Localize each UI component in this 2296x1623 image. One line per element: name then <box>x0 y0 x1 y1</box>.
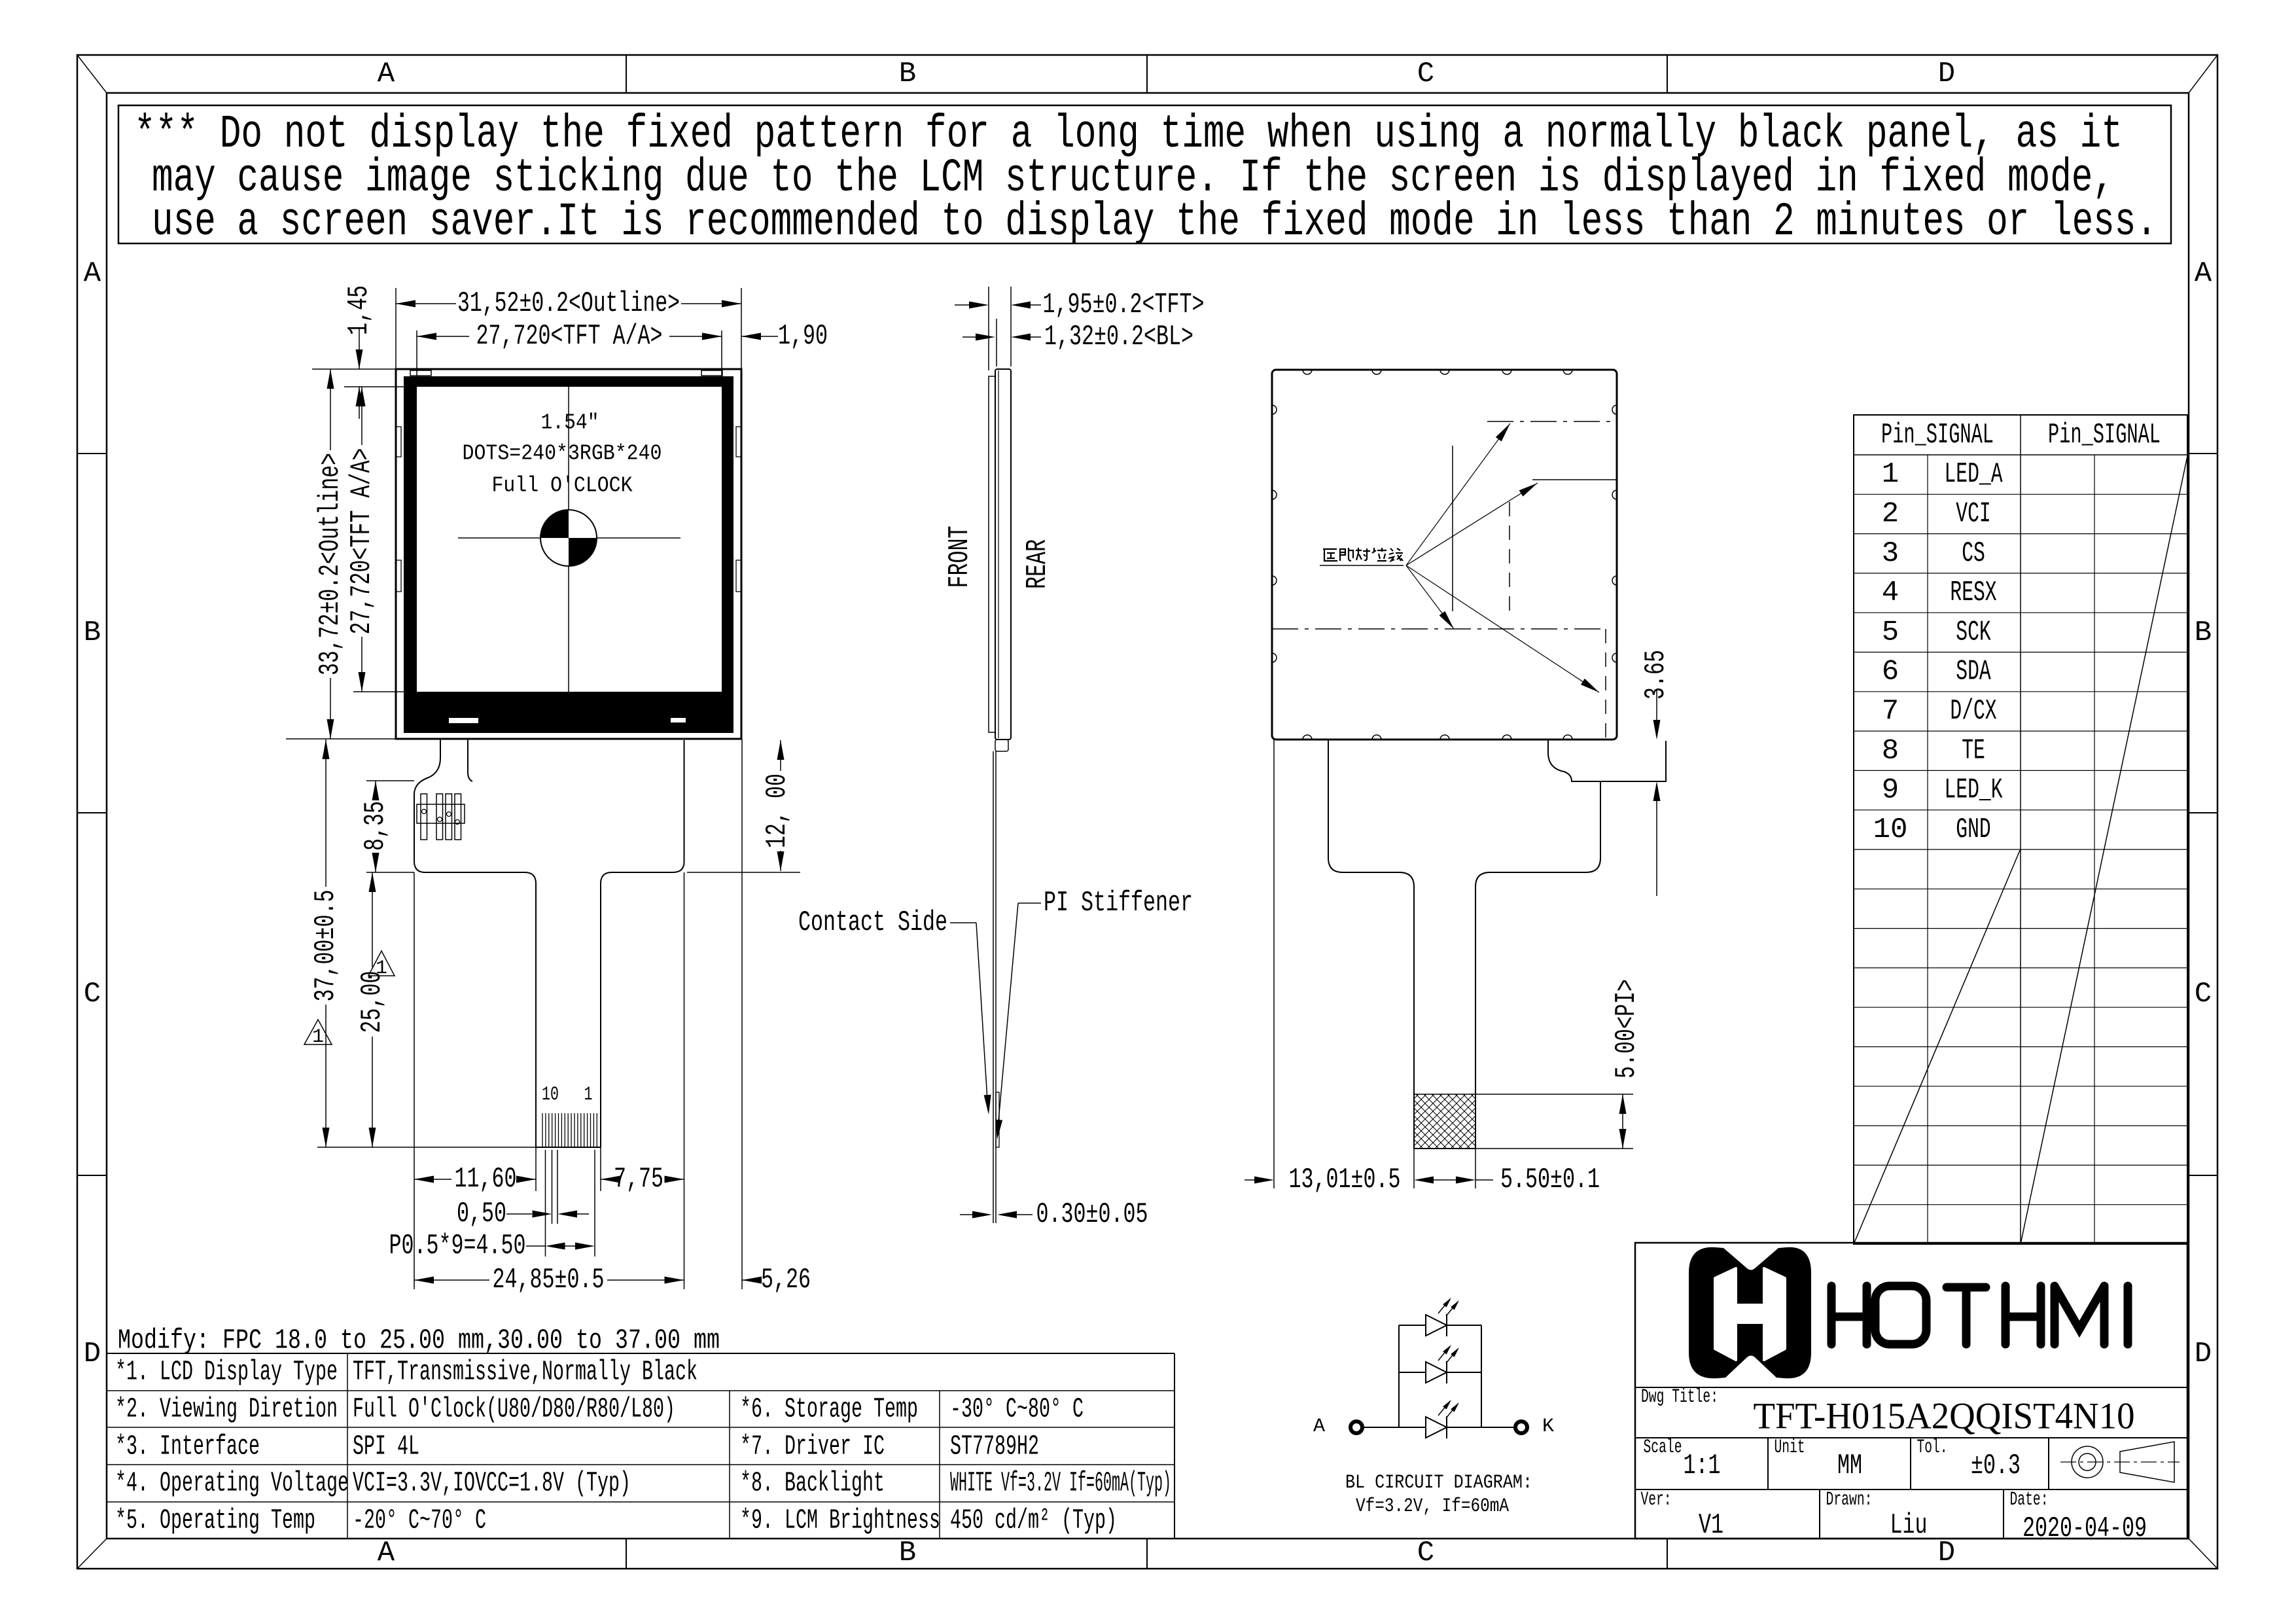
svg-text:1:1: 1:1 <box>1684 1450 1721 1482</box>
svg-text:A: A <box>378 58 395 90</box>
svg-text:SPI 4L: SPI 4L <box>353 1431 419 1463</box>
svg-text:Full O'Clock(U80/D80/R80/L80): Full O'Clock(U80/D80/R80/L80) <box>353 1393 675 1425</box>
svg-text:Dwg Title:: Dwg Title: <box>1641 1386 1718 1408</box>
svg-text:REAR: REAR <box>1021 539 1054 589</box>
svg-text:10: 10 <box>542 1084 559 1106</box>
svg-text:RESX: RESX <box>1950 577 1996 609</box>
svg-text:VCI: VCI <box>1956 497 1990 530</box>
svg-text:C: C <box>2195 978 2212 1010</box>
svg-text:TFT,Transmissive,Normally Blac: TFT,Transmissive,Normally Black <box>353 1356 698 1388</box>
svg-text:*5. Operating Temp: *5. Operating Temp <box>115 1505 315 1537</box>
svg-text:A: A <box>378 1537 395 1569</box>
svg-text:PI Stiffener: PI Stiffener <box>1044 887 1193 919</box>
svg-text:SCK: SCK <box>1956 616 1991 649</box>
svg-text:10: 10 <box>1873 813 1908 846</box>
svg-text:8: 8 <box>1882 734 1899 767</box>
svg-text:D: D <box>2195 1338 2212 1370</box>
svg-text:±0.3: ±0.3 <box>1971 1450 2021 1482</box>
svg-text:Liu: Liu <box>1890 1509 1928 1542</box>
svg-text:C: C <box>84 978 101 1010</box>
svg-text:GND: GND <box>1956 813 1990 846</box>
svg-text:-30° C~80° C: -30° C~80° C <box>950 1393 1084 1425</box>
svg-text:7: 7 <box>1882 695 1899 728</box>
svg-text:2020-04-09: 2020-04-09 <box>2022 1512 2147 1545</box>
svg-text:*9. LCM Brightness: *9. LCM Brightness <box>740 1505 940 1537</box>
svg-text:ST7789H2: ST7789H2 <box>950 1431 1039 1463</box>
svg-text:24,85±0.5: 24,85±0.5 <box>493 1264 605 1296</box>
svg-text:D: D <box>84 1338 101 1370</box>
svg-text:C: C <box>1417 1537 1434 1569</box>
svg-text:Modify: FPC 18.0 to 25.00 mm,3: Modify: FPC 18.0 to 25.00 mm,30.00 to 37… <box>118 1325 720 1357</box>
svg-text:1,32±0.2<BL>: 1,32±0.2<BL> <box>1044 321 1193 353</box>
svg-text:1,95±0.2<TFT>: 1,95±0.2<TFT> <box>1043 289 1205 321</box>
svg-text:use a screen saver.It is recom: use a screen saver.It is recommended to … <box>152 196 2157 249</box>
svg-text:D/CX: D/CX <box>1950 695 1996 728</box>
svg-text:6: 6 <box>1882 656 1899 688</box>
svg-text:FRONT: FRONT <box>944 526 976 588</box>
svg-text:0,50: 0,50 <box>457 1198 506 1230</box>
svg-text:WHITE Vf=3.2V If=60mA(Typ): WHITE Vf=3.2V If=60mA(Typ) <box>950 1467 1171 1499</box>
svg-text:DOTS=240*3RGB*240: DOTS=240*3RGB*240 <box>463 442 662 466</box>
svg-text:1.54": 1.54" <box>541 411 599 435</box>
svg-text:B: B <box>2195 616 2212 649</box>
svg-text:SDA: SDA <box>1956 656 1991 688</box>
svg-text:B: B <box>899 58 916 90</box>
svg-text:37,00±0.5: 37,00±0.5 <box>309 890 342 1002</box>
svg-text:Full O'CLOCK: Full O'CLOCK <box>492 474 633 498</box>
svg-text:VCI=3.3V,IOVCC=1.8V (Typ): VCI=3.3V,IOVCC=1.8V (Typ) <box>353 1467 631 1499</box>
svg-text:Pin_SIGNAL: Pin_SIGNAL <box>2048 419 2161 452</box>
svg-text:3.65: 3.65 <box>1640 650 1672 700</box>
svg-text:Contact Side: Contact Side <box>798 906 947 939</box>
svg-text:*3. Interface: *3. Interface <box>115 1431 260 1463</box>
svg-text:D: D <box>1938 1537 1955 1569</box>
svg-text:TE: TE <box>1962 734 1985 767</box>
svg-text:33,72±0.2<Outline>: 33,72±0.2<Outline> <box>314 453 347 675</box>
svg-text:B: B <box>899 1537 916 1569</box>
svg-text:*6. Storage Temp: *6. Storage Temp <box>740 1393 918 1425</box>
svg-text:1: 1 <box>584 1084 593 1106</box>
svg-text:11,60: 11,60 <box>455 1163 517 1196</box>
svg-text:Pin_SIGNAL: Pin_SIGNAL <box>1881 419 1994 452</box>
svg-text:1: 1 <box>376 957 387 980</box>
svg-text:Scale: Scale <box>1644 1436 1682 1459</box>
svg-text:1,90: 1,90 <box>778 320 828 353</box>
svg-text:Drawn:: Drawn: <box>1826 1489 1873 1511</box>
svg-text:*2. Viewing Diretion: *2. Viewing Diretion <box>115 1393 338 1425</box>
svg-text:2: 2 <box>1882 497 1899 530</box>
svg-text:13,01±0.5: 13,01±0.5 <box>1289 1164 1401 1196</box>
svg-text:V1: V1 <box>1699 1509 1723 1542</box>
svg-text:Ver:: Ver: <box>1641 1489 1672 1511</box>
svg-text:5: 5 <box>1882 616 1899 649</box>
svg-text:*8. Backlight: *8. Backlight <box>740 1467 885 1499</box>
svg-text:*1. LCD Display Type: *1. LCD Display Type <box>115 1356 338 1388</box>
svg-text:B: B <box>84 616 101 649</box>
svg-text:A: A <box>2195 257 2212 290</box>
svg-text:MM: MM <box>1837 1450 1862 1482</box>
svg-text:1: 1 <box>312 1026 324 1048</box>
svg-text:5.00<PI>: 5.00<PI> <box>1610 979 1643 1079</box>
svg-text:LED_A: LED_A <box>1945 458 2003 491</box>
svg-text:27,720<TFT A/A>: 27,720<TFT A/A> <box>476 320 663 353</box>
svg-text:D: D <box>1938 58 1955 90</box>
svg-text:1,45: 1,45 <box>343 285 376 335</box>
svg-text:C: C <box>1417 58 1434 90</box>
svg-text:25,00: 25,00 <box>356 971 389 1033</box>
svg-text:7,75: 7,75 <box>614 1163 663 1196</box>
svg-text:P0.5*9=4.50: P0.5*9=4.50 <box>389 1230 526 1262</box>
svg-text:27,720<TFT A/A>: 27,720<TFT A/A> <box>345 448 378 635</box>
svg-text:BL CIRCUIT DIAGRAM:: BL CIRCUIT DIAGRAM: <box>1345 1472 1532 1494</box>
svg-text:CS: CS <box>1962 537 1985 570</box>
svg-text:31,52±0.2<Outline>: 31,52±0.2<Outline> <box>457 287 680 320</box>
svg-text:TFT-H015A2QQIST4N10: TFT-H015A2QQIST4N10 <box>1754 1396 2135 1437</box>
svg-text:450 cd/m² (Typ): 450 cd/m² (Typ) <box>950 1505 1117 1537</box>
svg-text:-20° C~70° C: -20° C~70° C <box>353 1505 486 1537</box>
svg-text:Date:: Date: <box>2010 1489 2049 1511</box>
svg-text:A: A <box>84 257 101 290</box>
svg-text:5,26: 5,26 <box>761 1264 811 1296</box>
svg-text:0.30±0.05: 0.30±0.05 <box>1036 1198 1148 1231</box>
svg-text:5.50±0.1: 5.50±0.1 <box>1500 1164 1600 1196</box>
svg-text:4: 4 <box>1882 577 1899 609</box>
svg-text:12, 00: 12, 00 <box>761 774 794 848</box>
svg-text:A: A <box>1313 1416 1325 1438</box>
svg-text:LED_K: LED_K <box>1945 774 2003 807</box>
svg-text:1: 1 <box>1882 458 1899 491</box>
svg-text:9: 9 <box>1882 774 1899 807</box>
svg-text:3: 3 <box>1882 537 1899 570</box>
svg-text:Vf=3.2V, If=60mA: Vf=3.2V, If=60mA <box>1356 1495 1509 1518</box>
svg-text:8,35: 8,35 <box>359 801 392 851</box>
svg-text:*7. Driver IC: *7. Driver IC <box>740 1431 885 1463</box>
svg-text:Tol.: Tol. <box>1917 1436 1948 1459</box>
svg-text:K: K <box>1542 1416 1554 1438</box>
svg-text:Unit: Unit <box>1775 1436 1805 1459</box>
svg-text:*4. Operating Voltage: *4. Operating Voltage <box>115 1467 349 1499</box>
